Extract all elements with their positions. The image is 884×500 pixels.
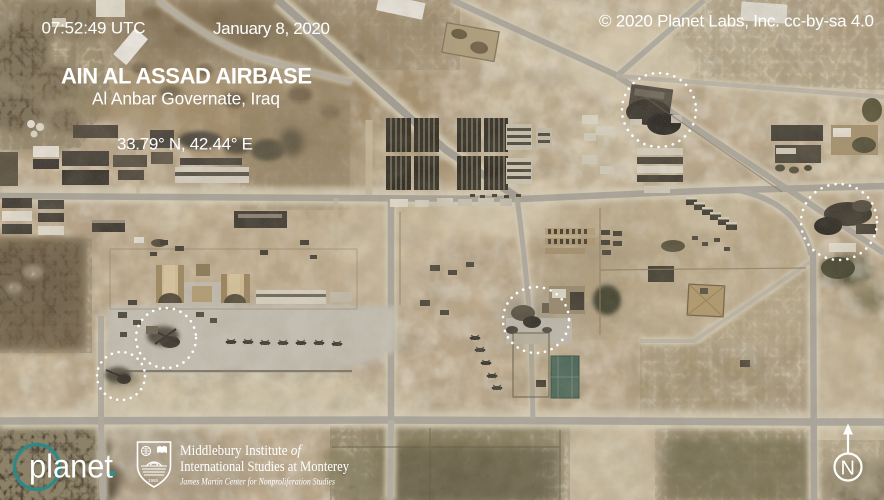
svg-text:AIN AL ASSAD AIRBASE: AIN AL ASSAD AIRBASE bbox=[61, 64, 312, 89]
svg-text:© 2020 Planet Labs, Inc. cc-by: © 2020 Planet Labs, Inc. cc-by-sa 4.0 bbox=[599, 12, 874, 31]
svg-text:January 8, 2020: January 8, 2020 bbox=[213, 19, 330, 38]
svg-text:1955: 1955 bbox=[148, 478, 159, 483]
svg-text:07:52:49 UTC: 07:52:49 UTC bbox=[42, 19, 146, 38]
svg-text:International Studies at Monte: International Studies at Monterey bbox=[180, 459, 349, 475]
svg-text:James Martin Center for Nonpro: James Martin Center for Nonproliferation… bbox=[180, 477, 335, 488]
svg-text:N: N bbox=[841, 458, 855, 480]
svg-text:Middlebury Institute of: Middlebury Institute of bbox=[180, 443, 303, 459]
svg-text:33.79° N, 42.44° E: 33.79° N, 42.44° E bbox=[117, 135, 253, 154]
svg-text:planet: planet bbox=[29, 448, 113, 485]
svg-text:Al Anbar Governate, Iraq: Al Anbar Governate, Iraq bbox=[92, 89, 280, 109]
